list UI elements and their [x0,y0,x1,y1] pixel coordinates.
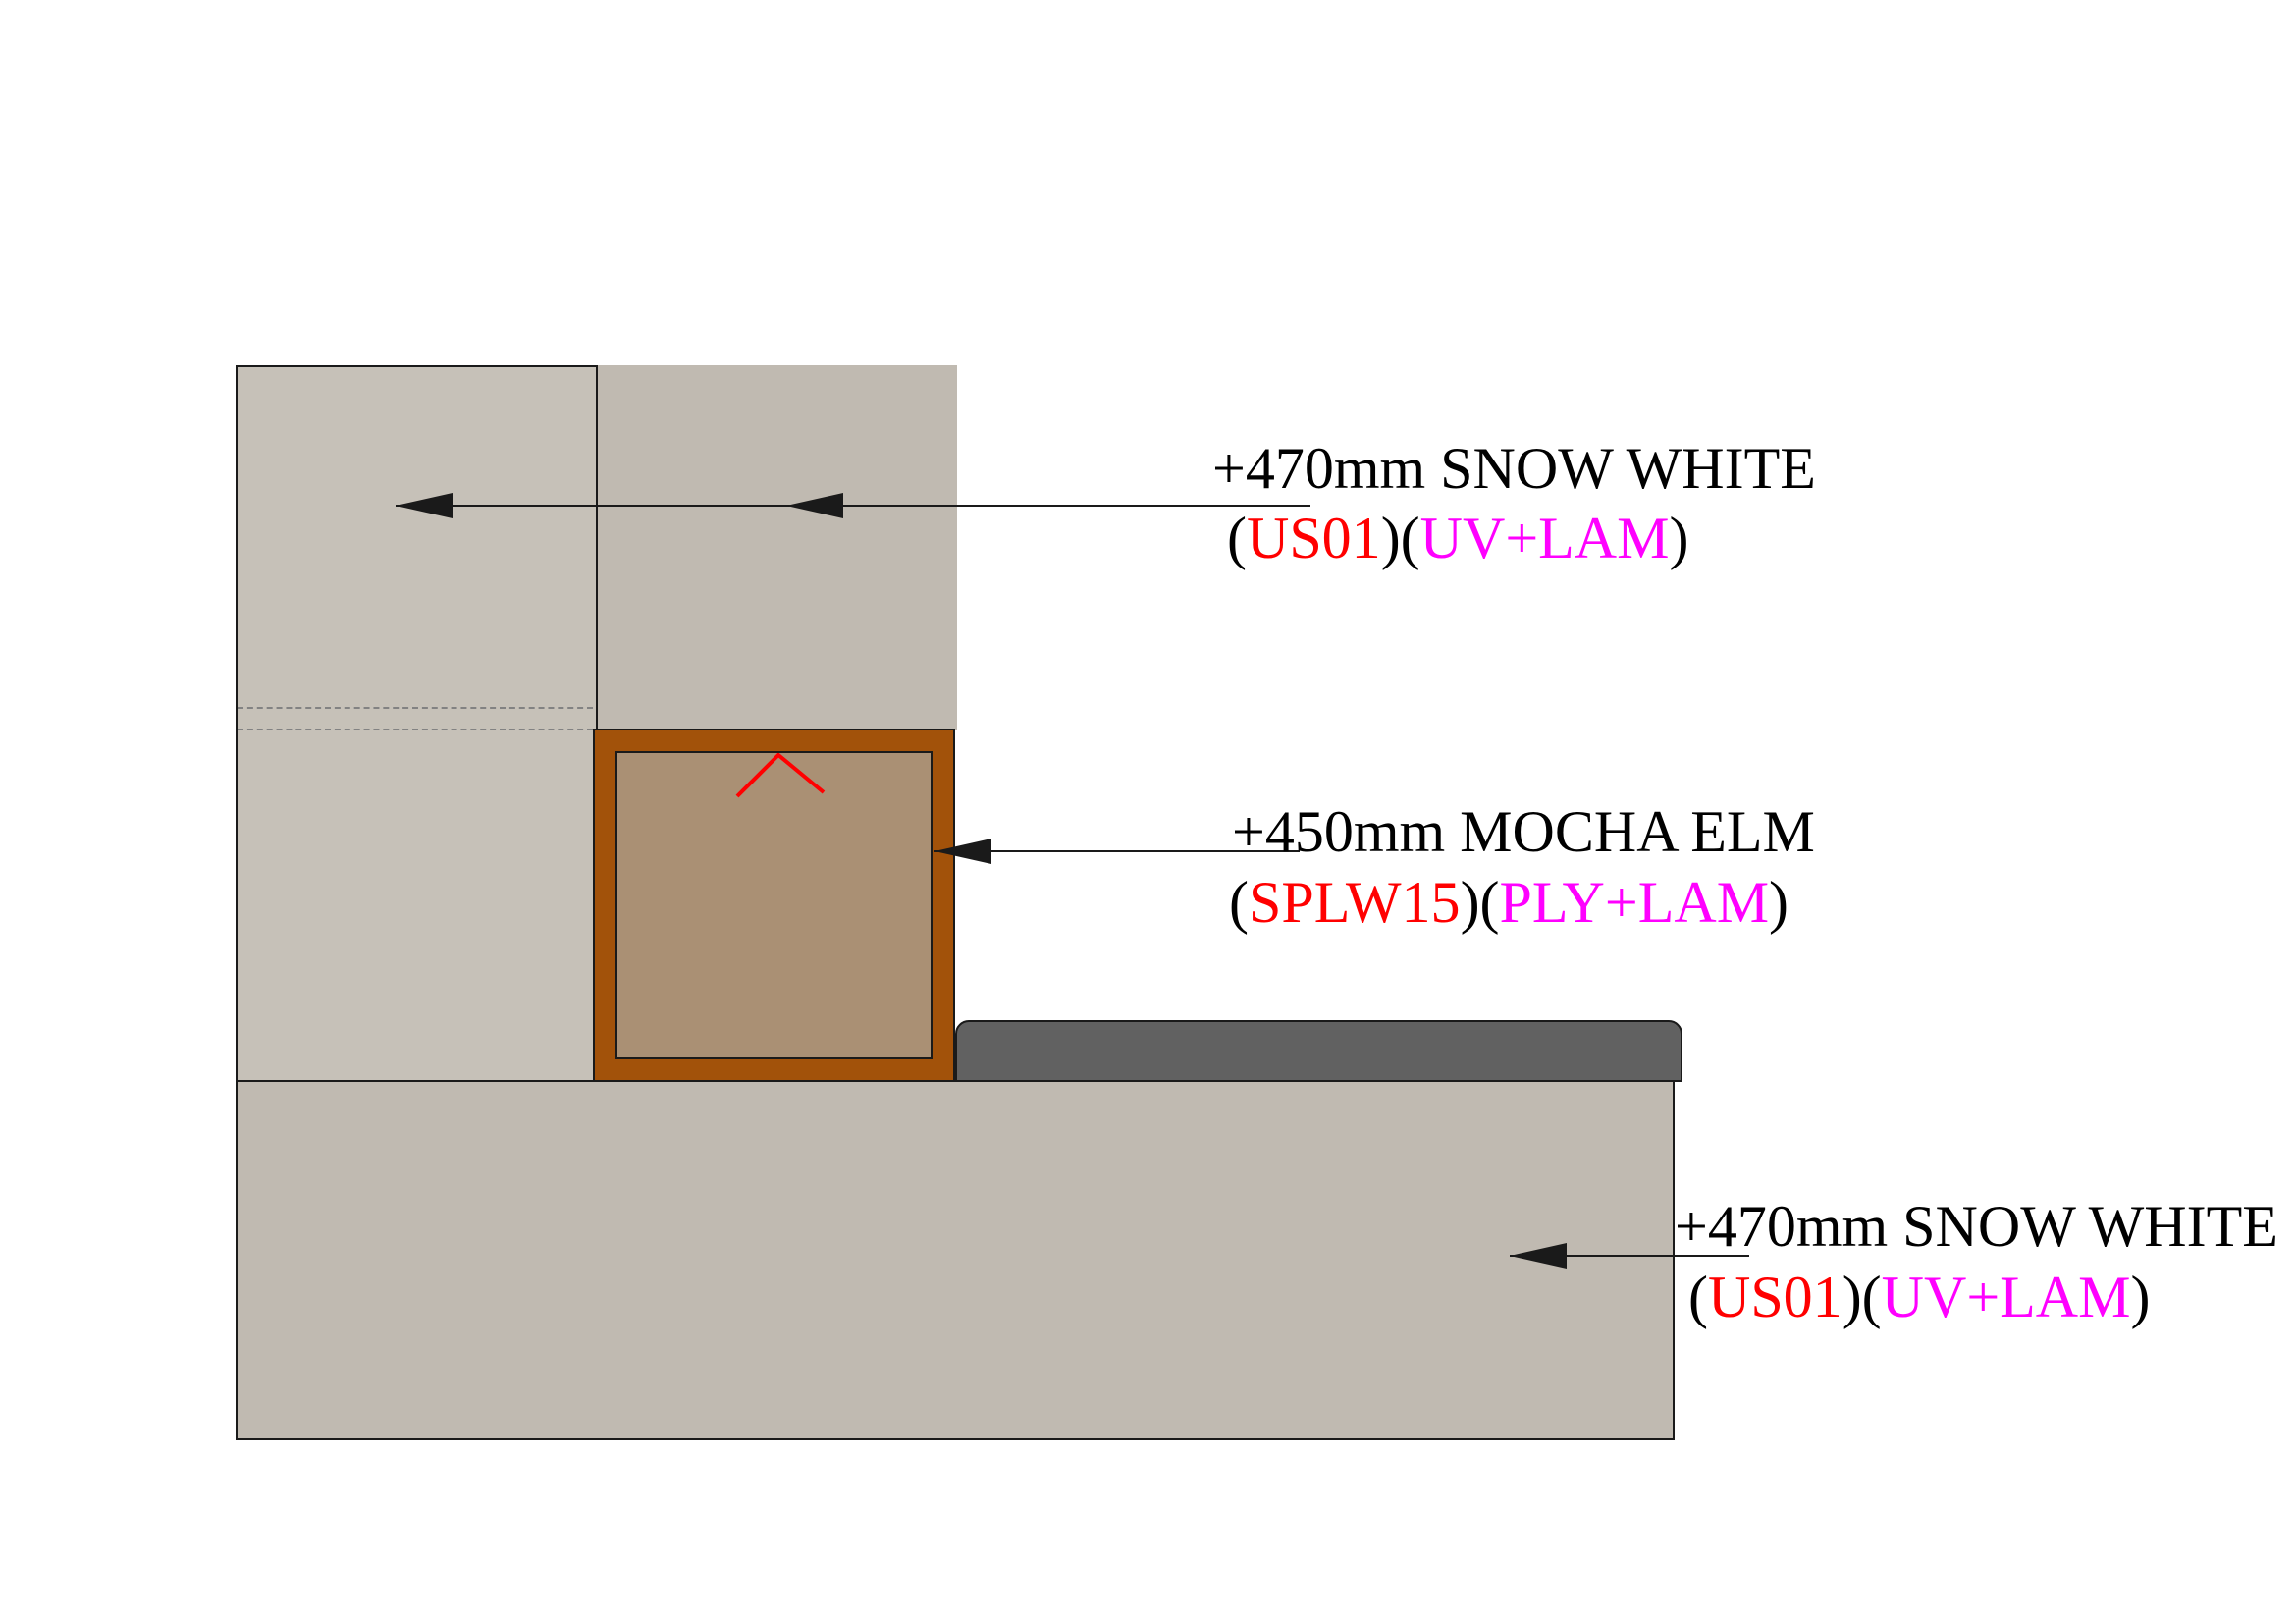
color-code: US01 [1708,1265,1842,1329]
mocha-niche-back-panel [615,751,933,1059]
paren-mid: )( [1842,1265,1882,1329]
upper-annotation-line1: +470mm SNOW WHITE [1212,438,1816,499]
color-code: US01 [1247,506,1381,570]
wall-panel-right-column [596,365,957,730]
middle-annotation-line2: (SPLW15)(PLY+LAM) [1229,872,1789,933]
paren-open: ( [1229,870,1249,935]
paren-open: ( [1227,506,1247,570]
dashed-joint-line-upper [238,707,593,709]
paren-close: ) [1669,506,1688,570]
upper-mid-arrowhead-icon [786,493,843,518]
middle-arrowhead-icon [934,839,991,864]
cabinet-elevation-drawing: +470mm SNOW WHITE (US01)(UV+LAM) +450mm … [0,0,2296,1623]
middle-annotation-line1: +450mm MOCHA ELM [1232,801,1815,862]
paren-close: ) [1769,870,1789,935]
lower-annotation-line2: (US01)(UV+LAM) [1688,1267,2150,1327]
finish-code: UV+LAM [1882,1265,2131,1329]
countertop [955,1020,1682,1082]
mocha-niche-frame [593,729,955,1082]
base-cabinet-block [236,1080,1675,1440]
paren-open: ( [1688,1265,1708,1329]
upper-left-arrowhead-icon [396,493,453,518]
upper-leader-line [396,505,1310,507]
dashed-joint-line-lower [238,729,593,730]
upper-annotation-line2: (US01)(UV+LAM) [1227,508,1688,568]
lower-arrowhead-icon [1510,1243,1567,1269]
finish-code: PLY+LAM [1500,870,1770,935]
color-code: SPLW15 [1249,870,1461,935]
paren-mid: )( [1461,870,1500,935]
paren-close: ) [2130,1265,2150,1329]
chevron-mark [617,753,934,1059]
paren-mid: )( [1381,506,1420,570]
finish-code: UV+LAM [1420,506,1670,570]
lower-annotation-line1: +470mm SNOW WHITE [1675,1196,2278,1257]
